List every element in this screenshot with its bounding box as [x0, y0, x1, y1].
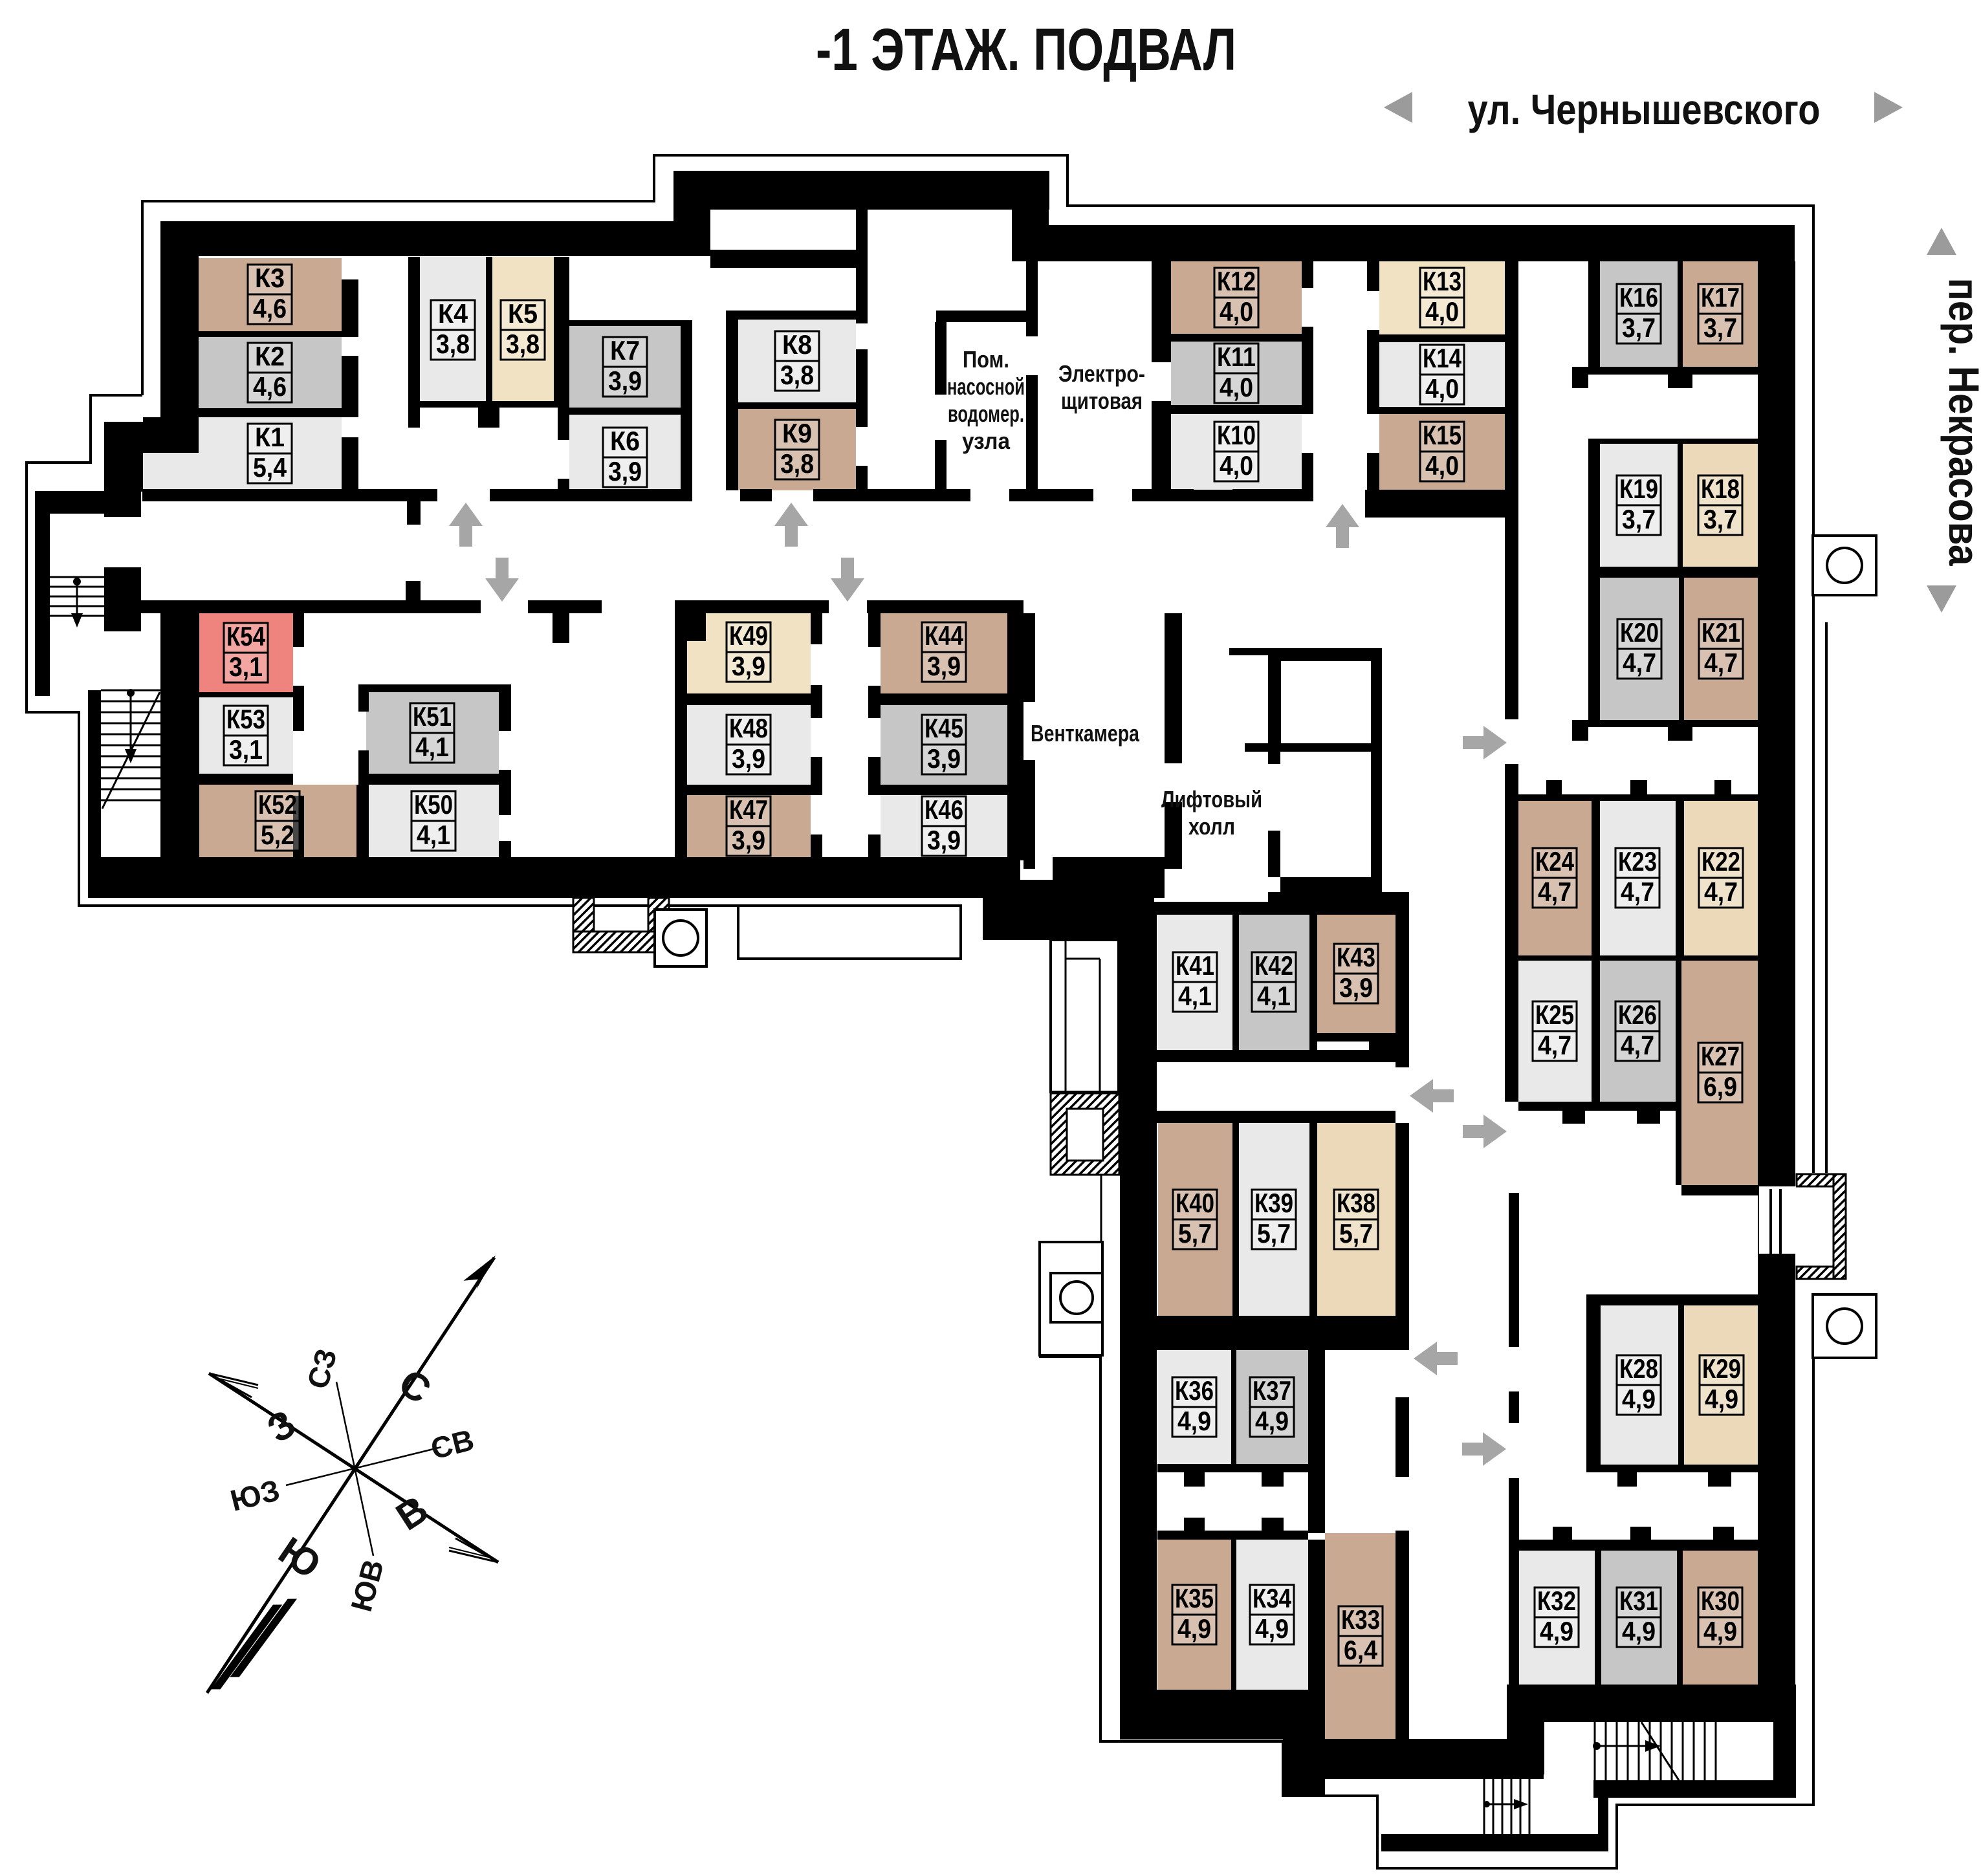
- svg-text:К8: К8: [782, 329, 812, 360]
- svg-text:4,7: 4,7: [1538, 1030, 1571, 1060]
- svg-text:3,9: 3,9: [927, 743, 961, 774]
- svg-text:3,7: 3,7: [1622, 312, 1656, 343]
- svg-text:К44: К44: [925, 620, 964, 651]
- svg-text:4,1: 4,1: [1178, 981, 1212, 1011]
- svg-text:К4: К4: [438, 298, 468, 329]
- svg-text:узла: узла: [962, 428, 1011, 454]
- svg-text:щитовая: щитовая: [1061, 387, 1143, 414]
- svg-text:Электро-: Электро-: [1058, 360, 1145, 387]
- svg-text:3,7: 3,7: [1703, 312, 1737, 343]
- svg-text:К3: К3: [255, 263, 285, 293]
- svg-text:К13: К13: [1423, 266, 1461, 296]
- svg-text:К43: К43: [1337, 942, 1375, 972]
- svg-text:К14: К14: [1423, 343, 1462, 373]
- svg-text:4,9: 4,9: [1255, 1613, 1289, 1644]
- svg-text:4,0: 4,0: [1425, 450, 1459, 481]
- svg-text:4,1: 4,1: [415, 732, 449, 762]
- svg-text:4,0: 4,0: [1220, 450, 1253, 481]
- svg-text:К51: К51: [413, 701, 452, 732]
- svg-text:3,8: 3,8: [780, 448, 814, 479]
- svg-text:К16: К16: [1619, 282, 1658, 312]
- svg-text:4,9: 4,9: [1622, 1616, 1656, 1646]
- svg-text:К34: К34: [1253, 1583, 1292, 1613]
- svg-text:К7: К7: [610, 335, 640, 365]
- svg-text:Лифтовый: Лифтовый: [1161, 786, 1262, 813]
- svg-text:К54: К54: [226, 621, 266, 651]
- svg-text:К10: К10: [1217, 420, 1256, 450]
- svg-text:К42: К42: [1254, 950, 1293, 981]
- svg-text:К38: К38: [1337, 1188, 1375, 1218]
- svg-text:4,9: 4,9: [1703, 1616, 1737, 1646]
- svg-text:5,2: 5,2: [261, 820, 294, 850]
- svg-text:4,9: 4,9: [1705, 1384, 1738, 1414]
- svg-text:3,9: 3,9: [732, 825, 765, 855]
- svg-text:4,7: 4,7: [1621, 877, 1654, 907]
- svg-text:4,1: 4,1: [1257, 981, 1291, 1011]
- svg-text:4,9: 4,9: [1177, 1613, 1211, 1644]
- svg-text:холл: холл: [1188, 813, 1235, 840]
- svg-text:К18: К18: [1701, 474, 1740, 504]
- svg-text:К41: К41: [1176, 950, 1214, 981]
- svg-text:К31: К31: [1619, 1586, 1658, 1616]
- svg-text:К28: К28: [1619, 1353, 1658, 1384]
- svg-text:К12: К12: [1217, 266, 1256, 296]
- svg-text:4,9: 4,9: [1177, 1406, 1211, 1436]
- svg-text:К20: К20: [1620, 617, 1659, 648]
- svg-text:К9: К9: [782, 418, 812, 448]
- svg-text:3,9: 3,9: [927, 825, 961, 855]
- svg-text:К30: К30: [1701, 1586, 1740, 1616]
- svg-text:К52: К52: [258, 789, 297, 820]
- svg-text:4,9: 4,9: [1622, 1384, 1656, 1414]
- svg-text:К37: К37: [1253, 1375, 1291, 1406]
- svg-text:К33: К33: [1341, 1604, 1380, 1635]
- svg-text:К19: К19: [1619, 474, 1658, 504]
- svg-text:4,1: 4,1: [417, 820, 450, 850]
- svg-text:К24: К24: [1535, 846, 1575, 877]
- svg-text:К26: К26: [1618, 999, 1657, 1030]
- svg-text:К48: К48: [729, 713, 768, 743]
- svg-text:4,0: 4,0: [1220, 372, 1253, 402]
- svg-text:3,9: 3,9: [732, 743, 765, 774]
- svg-text:К6: К6: [610, 426, 640, 456]
- svg-text:К17: К17: [1701, 282, 1740, 312]
- svg-text:Пом.: Пом.: [963, 346, 1009, 373]
- svg-text:К50: К50: [414, 789, 453, 820]
- svg-text:3,7: 3,7: [1622, 504, 1656, 534]
- svg-text:3,8: 3,8: [506, 329, 540, 359]
- svg-text:5,7: 5,7: [1339, 1218, 1373, 1249]
- svg-text:К46: К46: [925, 794, 963, 825]
- svg-text:-1 ЭТАЖ. ПОДВАЛ: -1 ЭТАЖ. ПОДВАЛ: [816, 17, 1236, 83]
- svg-text:5,7: 5,7: [1178, 1218, 1212, 1249]
- svg-text:К2: К2: [255, 341, 285, 371]
- svg-text:4,7: 4,7: [1704, 648, 1738, 678]
- svg-text:4,7: 4,7: [1704, 877, 1738, 907]
- svg-text:К25: К25: [1535, 999, 1574, 1030]
- svg-text:К5: К5: [508, 298, 538, 329]
- svg-text:6,9: 6,9: [1703, 1071, 1737, 1102]
- svg-text:насосной: насосной: [947, 373, 1025, 400]
- svg-text:К39: К39: [1254, 1188, 1293, 1218]
- svg-text:3,9: 3,9: [732, 651, 765, 681]
- svg-text:К40: К40: [1176, 1188, 1214, 1218]
- svg-text:Венткамера: Венткамера: [1031, 720, 1140, 747]
- svg-text:4,6: 4,6: [253, 371, 287, 402]
- svg-text:6,4: 6,4: [1344, 1635, 1378, 1665]
- svg-text:К32: К32: [1537, 1586, 1576, 1616]
- svg-text:4,0: 4,0: [1425, 296, 1459, 327]
- svg-text:4,6: 4,6: [253, 293, 287, 323]
- svg-text:4,7: 4,7: [1538, 877, 1571, 907]
- svg-text:5,7: 5,7: [1257, 1218, 1291, 1249]
- svg-text:3,1: 3,1: [229, 651, 263, 682]
- svg-text:К45: К45: [925, 713, 963, 743]
- svg-text:водомер.: водомер.: [948, 400, 1024, 427]
- svg-text:4,7: 4,7: [1623, 648, 1656, 678]
- svg-text:К11: К11: [1217, 342, 1256, 372]
- svg-text:К1: К1: [255, 422, 285, 452]
- svg-text:4,0: 4,0: [1220, 296, 1253, 327]
- svg-text:ул. Чернышевского: ул. Чернышевского: [1468, 85, 1821, 133]
- svg-text:3,9: 3,9: [608, 456, 642, 486]
- svg-text:К21: К21: [1702, 617, 1740, 648]
- svg-text:К49: К49: [729, 620, 768, 651]
- svg-text:3,8: 3,8: [436, 329, 470, 359]
- svg-text:пер. Некрасова: пер. Некрасова: [1940, 278, 1981, 567]
- svg-text:4,0: 4,0: [1425, 373, 1459, 404]
- svg-text:К15: К15: [1423, 420, 1461, 450]
- svg-text:4,7: 4,7: [1621, 1030, 1654, 1060]
- svg-text:К23: К23: [1618, 846, 1657, 877]
- svg-text:4,9: 4,9: [1255, 1406, 1289, 1436]
- svg-text:К35: К35: [1175, 1583, 1214, 1613]
- svg-text:К27: К27: [1701, 1041, 1740, 1071]
- svg-text:5,4: 5,4: [253, 452, 287, 483]
- svg-text:3,9: 3,9: [1339, 972, 1373, 1003]
- svg-text:3,7: 3,7: [1703, 504, 1737, 534]
- svg-text:К36: К36: [1175, 1375, 1214, 1406]
- svg-text:3,1: 3,1: [229, 734, 263, 765]
- svg-text:К53: К53: [226, 704, 265, 734]
- svg-text:К22: К22: [1702, 846, 1740, 877]
- svg-text:К29: К29: [1702, 1353, 1741, 1384]
- svg-text:К47: К47: [729, 794, 768, 825]
- svg-text:3,8: 3,8: [780, 360, 814, 390]
- svg-text:3,9: 3,9: [927, 651, 961, 681]
- svg-text:4,9: 4,9: [1540, 1616, 1573, 1646]
- svg-text:3,9: 3,9: [608, 365, 642, 396]
